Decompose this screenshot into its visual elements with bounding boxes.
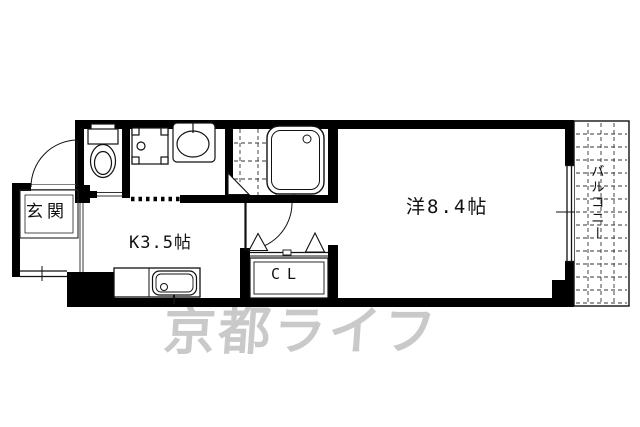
kitchen-label: K3.5帖 (129, 234, 192, 253)
entrance-door-arc (31, 140, 77, 187)
wall-entrance-hinge-block (77, 185, 90, 203)
washbasin-icon (173, 122, 215, 162)
wall-entrance-left (12, 183, 20, 277)
bathroom-door-icon (228, 173, 249, 195)
balcony-label: バルコニー (588, 164, 603, 264)
wall-right-top (565, 120, 574, 165)
washing-machine-pan-icon (132, 128, 168, 164)
kitchen-window (20, 266, 67, 281)
main-room-door-arc (246, 203, 293, 251)
toilet-door (97, 193, 122, 197)
entrance-label: 玄関 (26, 203, 68, 222)
wall-toilet-divider (122, 120, 130, 198)
floor-plan: 玄関 K3.5帖 CL 洋8.4帖 バルコニー 京都ライフ (0, 0, 640, 427)
balcony-window (556, 165, 575, 262)
wall-bath-room-divider (328, 120, 338, 203)
closet-label: CL (271, 266, 303, 283)
watermark-text: 京都ライフ (161, 289, 441, 364)
wall-corner-block-left (67, 272, 115, 307)
main-room-label: 洋8.4帖 (406, 197, 488, 218)
wall-washroom-bottom (180, 195, 338, 203)
toilet-icon (88, 124, 118, 178)
bathtub-icon (267, 126, 324, 194)
